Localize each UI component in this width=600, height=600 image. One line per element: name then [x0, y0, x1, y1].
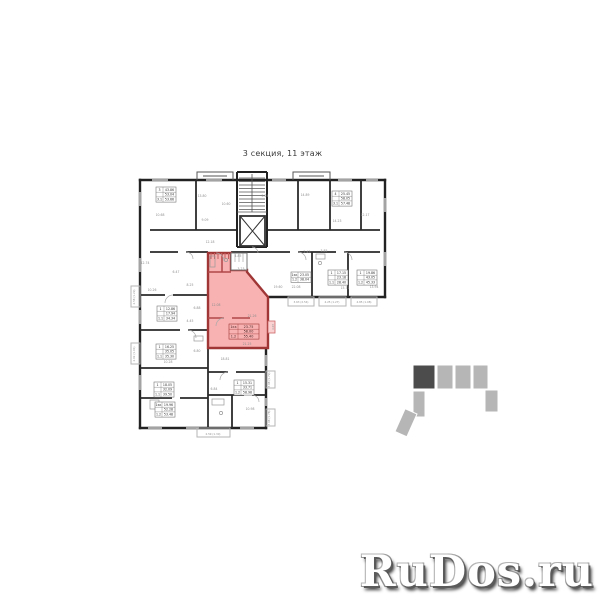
apartment-type: 1.1: [329, 280, 334, 284]
dimension-label: 4.85: [235, 254, 242, 258]
apartment-area: 23.75: [244, 325, 254, 329]
apartment-area: 17.15: [337, 271, 346, 275]
balcony-area-label: 2.02 (1.01): [132, 347, 136, 362]
dimension-label: 3.23: [238, 267, 245, 271]
dimension-label: 4.45: [187, 319, 194, 323]
dimension-label: 12.18: [206, 240, 215, 244]
apartment-area: 52.28: [164, 408, 173, 412]
balcony-area-label: 3.63 (2.54): [294, 300, 309, 304]
apartment-type: 1: [158, 345, 160, 349]
apartment-type: 1.1: [155, 392, 160, 396]
apartment-type: 1.1: [158, 316, 163, 320]
dimension-label: 10.28: [164, 360, 173, 364]
apartment-type: 1кк: [230, 325, 236, 329]
apartment-area: 28.40: [337, 280, 346, 284]
apartment-type: 1.2: [235, 390, 240, 394]
dimension-label: 13.94: [370, 285, 379, 289]
building-position-indicator: [395, 365, 498, 437]
apartment-area: 53.66: [165, 197, 174, 201]
dimension-label: 21.26: [248, 314, 257, 318]
apartment-type: 1.2: [156, 412, 161, 416]
balcony-area-label: 4.03: [271, 324, 275, 330]
dimension-label: 5.24: [262, 194, 269, 198]
apartment-area: 23.05: [300, 273, 309, 277]
apartment-type: 1.2: [231, 334, 236, 338]
apartment-type: 3.1: [157, 197, 162, 201]
apartment-area: 17.94: [166, 312, 175, 316]
apartment-type: 1кк: [292, 273, 298, 277]
apartment-area: 43.86: [165, 188, 174, 192]
apartment-type: 1.2: [292, 278, 297, 282]
dimension-label: 8.25: [187, 283, 194, 287]
dimension-label: 6.80: [194, 349, 201, 353]
balcony-area-label: 4.25 (1.27): [325, 300, 340, 304]
dimension-label: 18.81: [221, 357, 230, 361]
dimension-label: 6.47: [173, 270, 180, 274]
balcony-area-label: 3.08 (1.79): [267, 373, 271, 388]
dimension-label: 10.26: [148, 288, 157, 292]
balcony-area-label: 4.85 (1.08): [357, 300, 372, 304]
apartment-area: 39.50: [163, 392, 172, 396]
apartment-type: 1кк: [156, 403, 162, 407]
dimension-label: 10.60: [222, 202, 231, 206]
apartment-area: 55.40: [244, 334, 254, 338]
dimension-label: 19.60: [274, 285, 283, 289]
apartment-area: 33.71: [243, 386, 252, 390]
apartment-area: 53.48: [164, 412, 173, 416]
apartment-area: 58.98: [243, 390, 252, 394]
apartment-type: 1.2: [358, 280, 363, 284]
apartment-area: 57.48: [341, 201, 350, 205]
dimension-label: 14.89: [301, 193, 310, 197]
dimension-label: 21.25: [243, 342, 252, 346]
apartment-area: 25.45: [341, 192, 350, 196]
apartment-area: 16.25: [165, 345, 174, 349]
current-section-block: [413, 365, 435, 389]
apartment-area: 32.09: [163, 388, 172, 392]
dimension-label: 14.23: [333, 219, 342, 223]
apartment-area: 18.05: [163, 383, 172, 387]
apartment-area: 19.96: [164, 403, 173, 407]
dimension-label: 10.68: [156, 213, 165, 217]
apartment-type: 1: [330, 271, 332, 275]
dimension-label: 2.45: [304, 250, 311, 254]
balcony-area-label: 2.59 (1.30): [206, 432, 221, 436]
apartment-area: 58.05: [341, 197, 350, 201]
dimension-label: 3.85: [321, 249, 328, 253]
apartment-type: 1: [159, 307, 161, 311]
apartment-type: 1: [156, 383, 158, 387]
apartment-area: 53.04: [165, 193, 174, 197]
dimension-label: 12.17: [361, 213, 370, 217]
dimension-label: 15.71: [341, 286, 350, 290]
dimension-label: 13.80: [198, 194, 207, 198]
elevator-shaft: [240, 216, 265, 246]
apartment-area: 19.86: [366, 271, 375, 275]
balcony-area-label: 3.08 (1.78): [267, 411, 271, 426]
apartment-area: 23.18: [337, 276, 346, 280]
dimension-label: 22.08: [292, 285, 301, 289]
staircase: [237, 172, 267, 247]
dimension-label: 12.74: [141, 261, 150, 265]
apartment-type: 4: [334, 192, 336, 196]
apartment-area: 35.05: [165, 350, 174, 354]
apartment-area: 58.00: [244, 330, 254, 334]
apartment-type: 3: [158, 188, 160, 192]
apartment-type: 1: [236, 381, 238, 385]
apartment-area: 12.86: [166, 307, 175, 311]
apartment-area: 45.33: [366, 280, 375, 284]
highlighted-apartment-label: 1кк23.7558.001.255.40: [229, 324, 259, 339]
apartment-area: 43.05: [366, 276, 375, 280]
apartment-type: 1: [359, 271, 361, 275]
dimension-label: 6.84: [211, 387, 218, 391]
dimension-label: 12.08: [212, 303, 221, 307]
dimension-label: 10.98: [246, 407, 255, 411]
apartment-area: 15.31: [243, 381, 252, 385]
dimension-label: 6.88: [194, 306, 201, 310]
balcony-area-label: 2.58 (1.29): [132, 290, 136, 305]
apartment-area: 34.34: [166, 316, 175, 320]
apartment-type: 1.1: [157, 354, 162, 358]
watermark-logo: RuDos.ru: [360, 551, 594, 594]
floor-plan: 343.8653.043.153.66425.4558.053.157.481к…: [0, 0, 600, 600]
apartment-area: 35.30: [165, 354, 174, 358]
dimension-label: 9.09: [202, 218, 209, 222]
apartment-area: 38.04: [300, 278, 309, 282]
apartment-type: 3.1: [333, 201, 338, 205]
